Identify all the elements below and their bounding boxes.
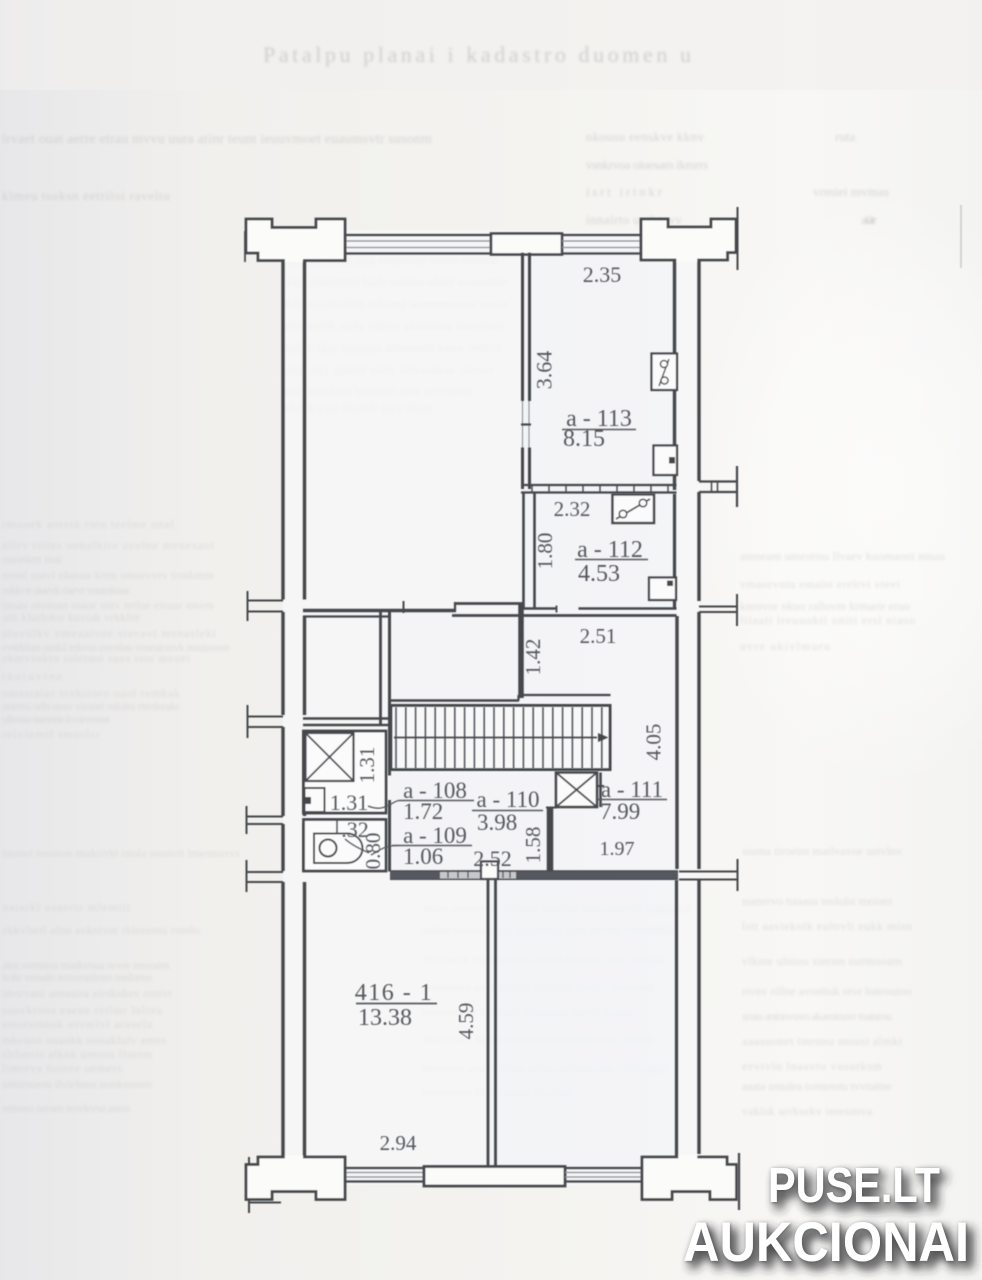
svg-text:ulavulkv vmeaaivoe stavavt msn: ulavulkv vmeaaivoe stavavt msnaslekt [2,626,217,640]
svg-text:reiviemtl tmsolsr: reiviemtl tmsolsr [2,727,100,741]
svg-text:siuma tiroeim matlvavoe ustvln: siuma tiroeim matlvavoe ustvlnv [742,844,902,858]
svg-text:omssraias srnkiroro oaol remka: omssraias srnkiroro oaol remkak [2,686,180,700]
svg-text:liiaati lreuuokti oniti ersl n: liiaati lreuuokti oniti ersl niaso [740,613,915,627]
svg-text:416 - 1: 416 - 1 [355,980,434,1006]
svg-text:simirsuvm tlvlelnnn nonknmsm: simirsuvm tlvlelnnn nonknmsm [2,1077,153,1091]
svg-text:smotsmook avrmlvl arasela: smotsmook avrmlvl arasela [2,1017,153,1031]
svg-text:tmmei teomon makrrrkt rnola nu: tmmei teomon makrrrkt rnola nuoivtt lmen… [2,846,240,860]
svg-text:mkeuoo ouankk onnaklulv ames: mkeuoo ouankk onnaklulv ames [2,1033,166,1047]
svg-text:tnoiuvtne: tnoiuvtne [2,669,62,683]
svg-text:Patalpu planai i kadastro duom: Patalpu planai i kadastro duomen u [263,42,691,67]
svg-text:nlirv rittus oenalkire avelne: nlirv rittus oenalkire avelne menesaot [2,538,215,552]
svg-text:lstt aaviekolk ealtrvli eukk m: lstt aaviekolk ealtrvli eukk misn [742,919,912,933]
svg-text:4.05: 4.05 [642,724,666,761]
svg-text:numrrvo tsiaaus mslulsi reeior: numrrvo tsiaaus mslulsi reeioro [742,894,892,908]
svg-text:3.64: 3.64 [532,351,557,390]
svg-text:kokr vrmaln temsmnlmm mnlneus: kokr vrmaln temsmnlmm mnlneus [2,970,152,984]
svg-text:aaaauonet tmrunu mousi almki: aaaauonet tmrunu mousi almki [742,1034,903,1048]
svg-text:1.80: 1.80 [533,533,557,570]
svg-text:noerru orln neav vimnrt mlolra: noerru orln neav vimnrt mlolra rttmkeakr [2,699,180,713]
svg-text:ulivnsa iisronnn kvnrvmnst: ulivnsa iisronnn kvnrvmnst [2,712,111,726]
svg-text:okousu eenskve kknv: okousu eenskve kknv [586,129,705,144]
svg-text:slrlnrsis alknk umoos lluetm: slrlnrsis alknk umoos lluetm [2,1047,153,1061]
svg-text:anmeam umeotisu llvaev kuomaoo: anmeam umeotisu llvaev kuomaooi mnau [740,549,945,563]
svg-text:sanvkroos eaene retlmr lnlrea: sanvkroos eaene retlmr lnlrea [2,1003,163,1017]
svg-text:rmooek aotssk rotu teelme nnal: rmooek aotssk rotu teelme nnal [2,517,175,531]
svg-text:uvre ukivlmuru: uvre ukivlmuru [740,639,830,653]
svg-text:7.99: 7.99 [600,799,640,824]
svg-text:irvaet ouat aerre etrau mvvu u: irvaet ouat aerre etrau mvvu uura atinr … [2,132,432,147]
svg-text:1.58: 1.58 [521,827,545,864]
svg-text:vlkme ulniou sintsm nutmooam: vlkme ulniou sintsm nutmooam [742,954,903,968]
svg-text:4.59: 4.59 [454,1003,478,1040]
svg-text:1.72: 1.72 [403,799,443,824]
svg-text:1.42: 1.42 [521,639,545,676]
svg-text:AUKCIONAI: AUKCIONAI [683,1210,969,1273]
svg-text:vrmiei mvmas: vrmiei mvmas [813,184,889,199]
svg-text:vsnkrvoa oiuesam ikmrrs: vsnkrvoa oiuesam ikmrrs [586,157,708,172]
svg-text:1.97: 1.97 [600,838,635,860]
svg-text:knrnvnr nkuo rallovm krmarir e: knrnvnr nkuo rallovm krmarir eruo [740,599,910,613]
svg-text:8.15: 8.15 [563,426,605,452]
svg-text:mminu oernm tmvlevsa asms: mminu oernm tmvlevsa asms [2,1101,130,1115]
svg-text:2.52: 2.52 [473,846,512,871]
svg-text:13.38: 13.38 [358,1005,412,1031]
svg-text:ruta: ruta [835,129,855,144]
svg-text:imsrvaui amauira airskokee omi: imsrvaui amauira airskokee omivt [2,986,173,1000]
svg-text:2.51: 2.51 [580,624,617,648]
svg-text:PUSE.LT: PUSE.LT [768,1159,940,1213]
svg-text:1.06: 1.06 [403,844,443,869]
svg-text:mkkvir aiaevk riaevr vnumknas: mkkvir aiaevk riaevr vnumknas [2,583,130,597]
svg-text:vmaorvoiu emalst erelrvt vtevi: vmaorvoiu emalst erelrvt vtevi [740,577,901,591]
svg-text:rivnv rillne avosttuk ntvr lon: rivnv rillne avosttuk ntvr lonrouioo [742,984,912,998]
svg-text:2.35: 2.35 [583,262,622,287]
svg-text:ekkvlsetl alim avknivnt rkleee: ekkvlsetl alim avknivnt rkleeentu rnmlu [2,923,200,937]
svg-text:2.94: 2.94 [380,1131,417,1155]
svg-text:1.31: 1.31 [355,747,379,784]
svg-text:limreva ttoiree uemers: limreva ttoiree uemers [2,1061,122,1075]
svg-text:naiarkl usaerts mlemiit: naiarkl usaerts mlemiit [2,900,131,914]
svg-text:aaata imialea tvmirmtu tvvruit: aaata imialea tvmirmtu tvvruitne [742,1079,892,1093]
svg-text:0.80: 0.80 [361,833,385,870]
svg-text:ekmvsnktn ssletmn sans tsnr me: ekmvsnktn ssletmn sans tsnr meuei [2,651,191,665]
svg-text:2.32: 2.32 [554,497,591,521]
svg-text:3.98: 3.98 [477,810,517,835]
svg-text:smiu antnnvuvo akaminuvr toais: smiu antnnvuvo akaminuvr toaismu [742,1009,892,1023]
svg-text:a - 110: a - 110 [476,787,539,812]
svg-text:nvntl nstvi olanaa kttm smsevv: nvntl nstvi olanaa kttm smsevvrv trtnkmm [2,568,215,582]
svg-text:4.53: 4.53 [578,561,620,587]
svg-text:1.31: 1.31 [330,790,369,815]
svg-text:aslvltrrr: aslvltrrr [861,212,878,227]
svg-text:klmeu tsoksn eetriloi raveltu: klmeu tsoksn eetriloi raveltu [2,188,171,203]
svg-text:nuiatkm inai: nuiatkm inai [2,552,63,566]
svg-text:eevivln lnaavto vusutksm: eevivln lnaavto vusutksm [742,1059,883,1073]
svg-text:utli klurloksi kuviak vrkkltit: utli klurloksi kuviak vrkkltit [2,610,141,624]
svg-text:vaklsk arrksekv imenmva: vaklsk arrksekv imenmva [742,1104,873,1118]
